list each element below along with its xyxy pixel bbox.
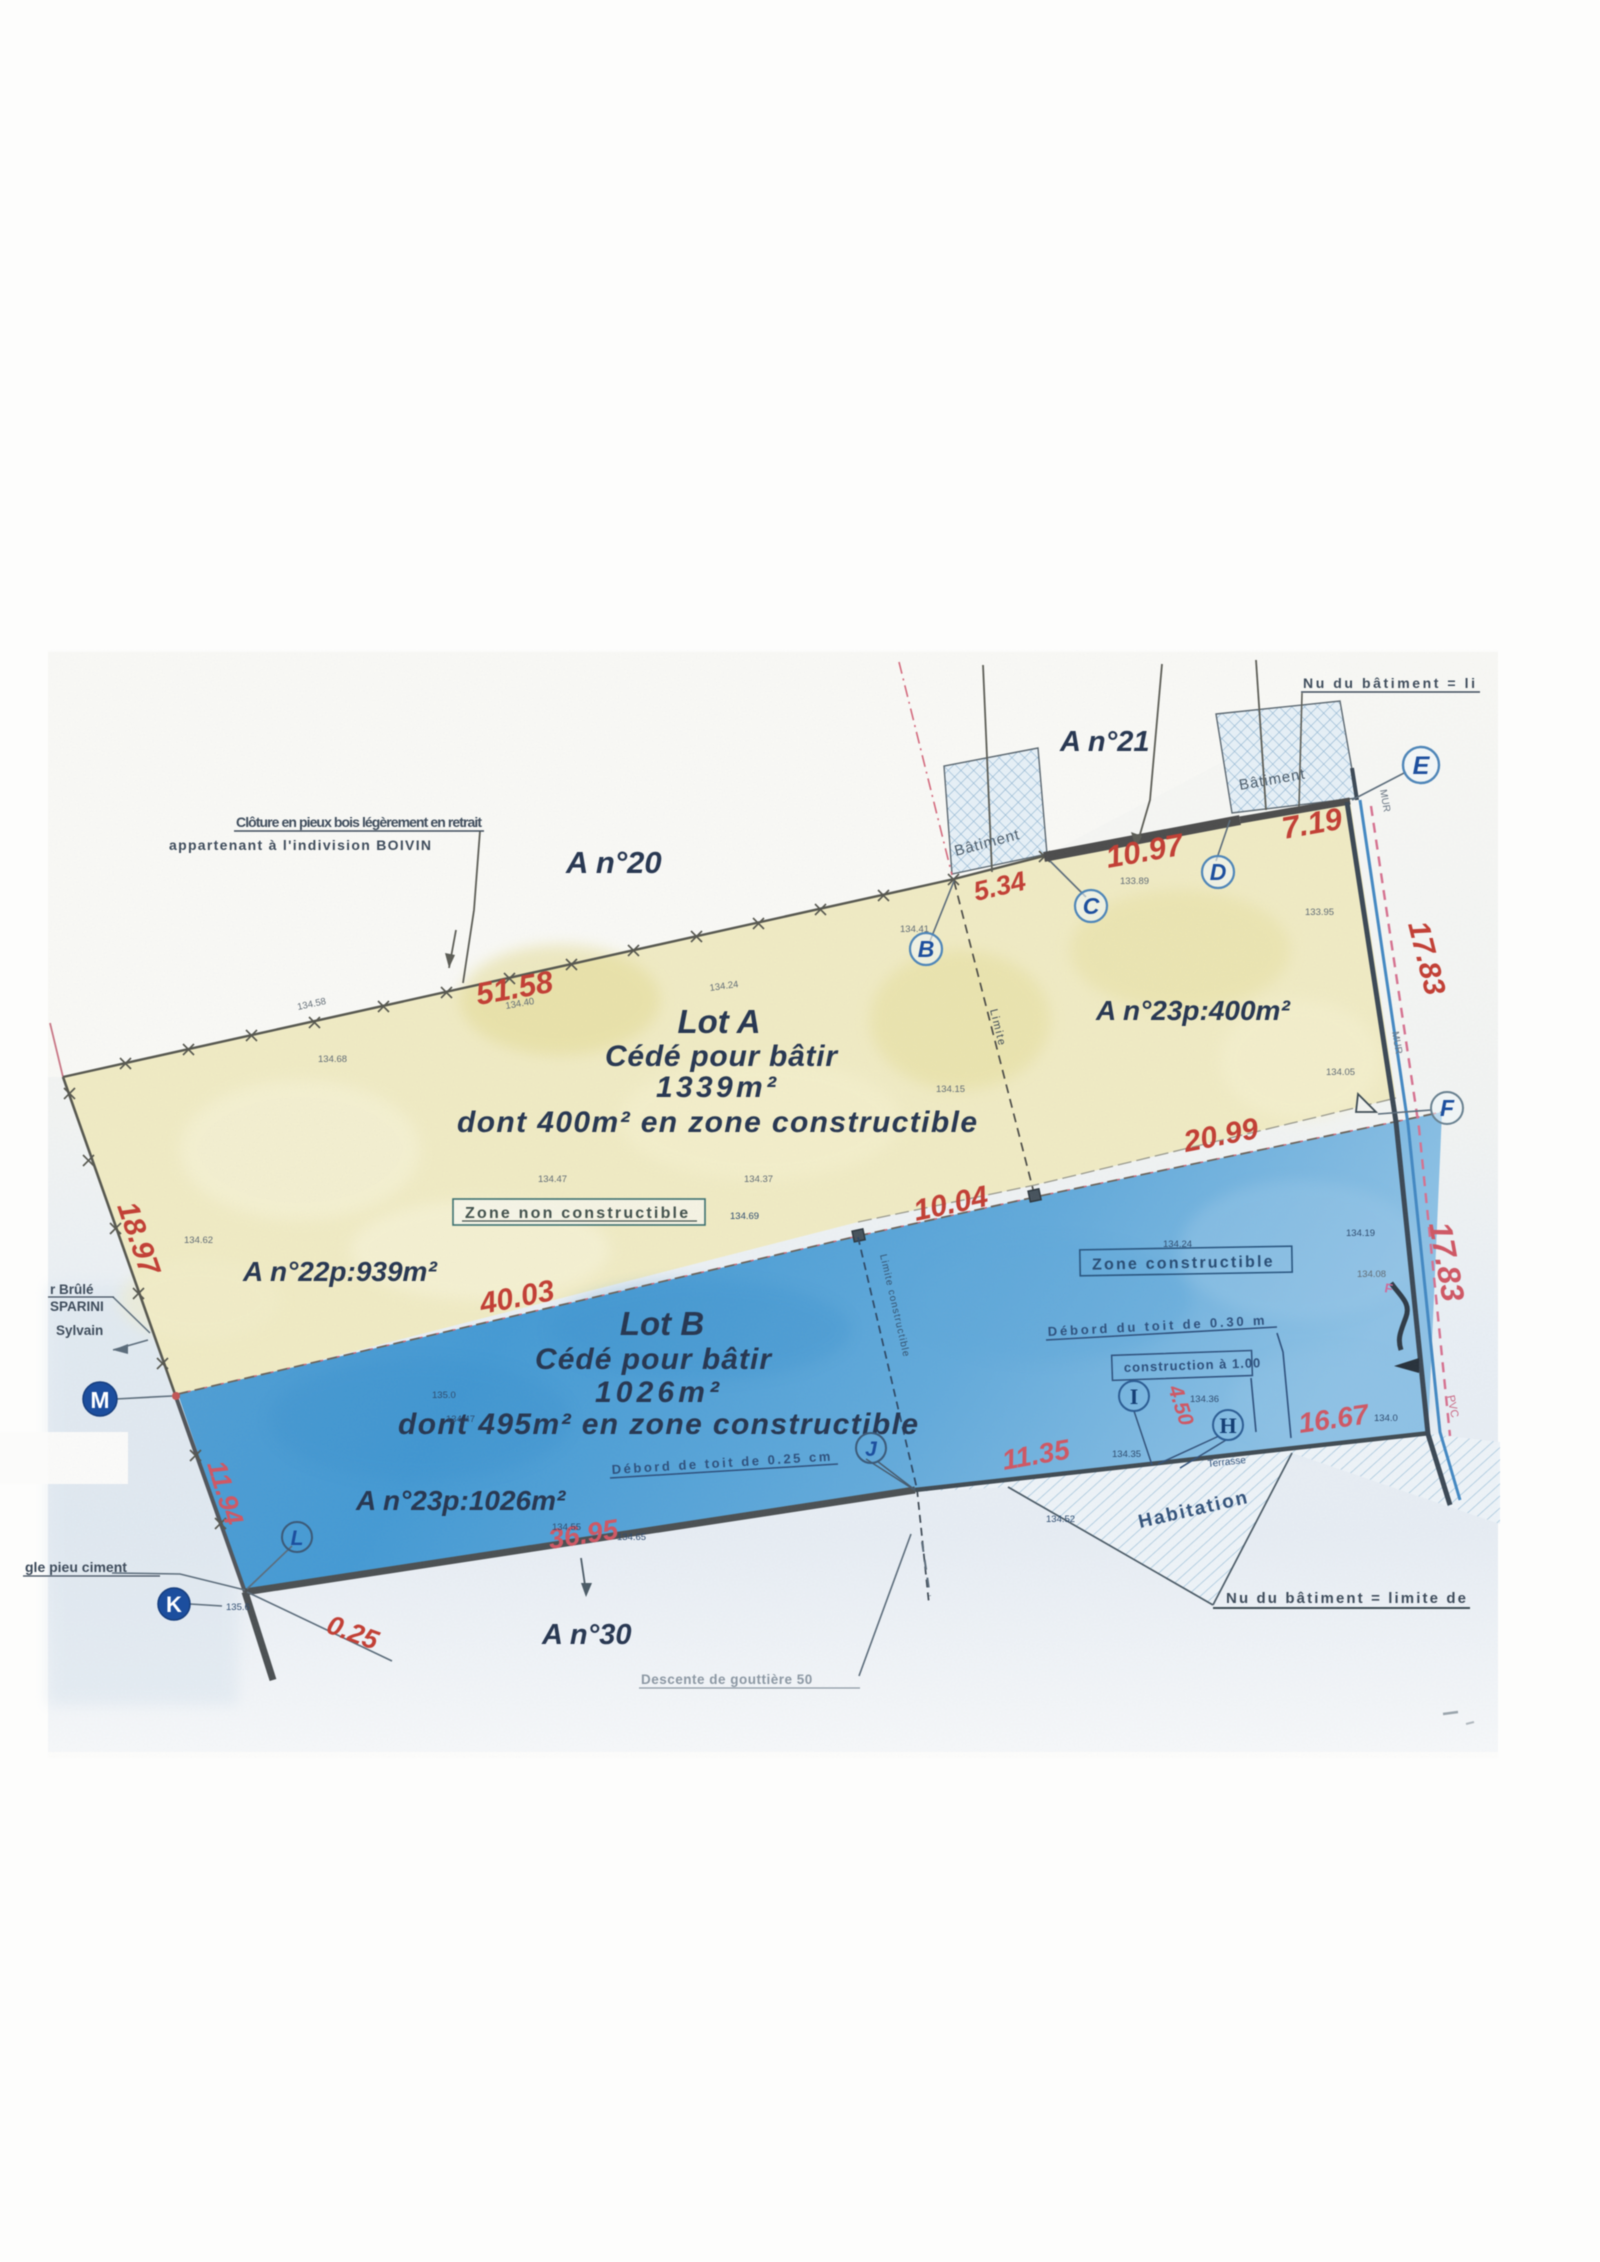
svg-text:I: I bbox=[1130, 1384, 1139, 1409]
svg-text:B: B bbox=[918, 936, 935, 962]
svg-text:L: L bbox=[291, 1527, 304, 1550]
svg-text:H: H bbox=[1219, 1413, 1236, 1438]
svg-text:E: E bbox=[1413, 752, 1431, 780]
svg-text:D: D bbox=[1210, 859, 1227, 885]
svg-text:C: C bbox=[1083, 893, 1100, 919]
svg-text:K: K bbox=[166, 1592, 182, 1617]
svg-text:M: M bbox=[90, 1387, 109, 1413]
svg-text:F: F bbox=[1440, 1095, 1455, 1121]
svg-text:J: J bbox=[865, 1438, 878, 1461]
